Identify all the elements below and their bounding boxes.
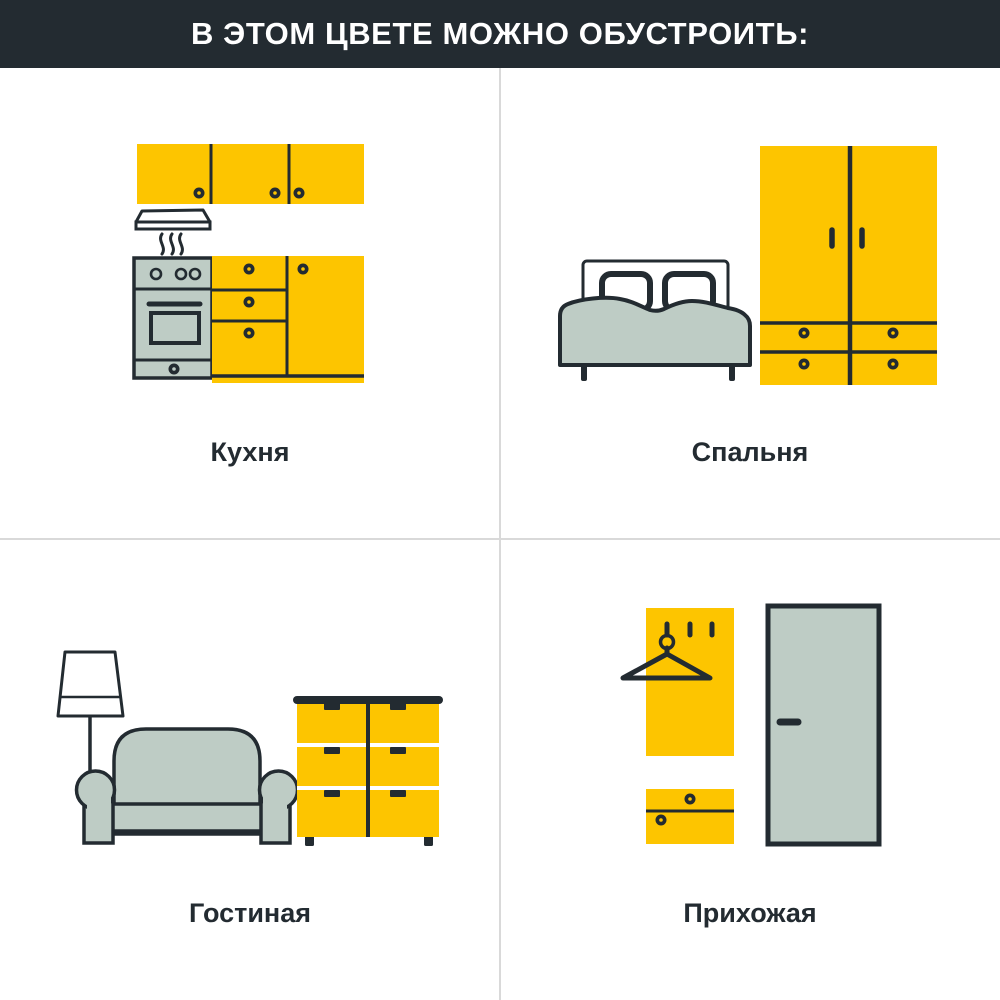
- drawer-knob-icon: [888, 359, 899, 370]
- drawer-knob-icon: [888, 328, 899, 339]
- room-label-hallway: Прихожая: [500, 897, 1000, 929]
- drawer-knob-icon: [244, 297, 255, 308]
- drawer-notch-handle-icon: [390, 790, 406, 797]
- room-label-kitchen: Кухня: [0, 436, 500, 468]
- dresser-top-icon: [293, 696, 443, 704]
- quadrant-kitchen: Кухня: [0, 68, 500, 539]
- sofa-arm-icon: [77, 771, 115, 843]
- chest-of-drawers-icon: [293, 696, 443, 846]
- quadrant-hallway: Прихожая: [500, 539, 1000, 1000]
- bed-leg-icon: [581, 365, 587, 381]
- drawer-knob-icon: [799, 328, 810, 339]
- header-bar: В ЭТОМ ЦВЕТЕ МОЖНО ОБУСТРОИТЬ:: [0, 0, 1000, 68]
- sofa-arm-icon: [260, 771, 298, 843]
- cabinet-knob-icon: [194, 188, 205, 199]
- cabinet-knob-icon: [270, 188, 281, 199]
- page-title: В ЭТОМ ЦВЕТЕ МОЖНО ОБУСТРОИТЬ:: [191, 16, 809, 52]
- sofa-icon: [77, 729, 298, 843]
- drawer-knob-icon: [169, 364, 180, 375]
- drawer-knob-icon: [685, 794, 696, 805]
- bed-leg-icon: [729, 365, 735, 381]
- stove-oven-icon: [134, 258, 212, 378]
- drawer-knob-icon: [656, 815, 667, 826]
- drawer-notch-handle-icon: [390, 747, 406, 754]
- coat-rack-panel-icon: [646, 608, 734, 756]
- drawer-notch-handle-icon: [390, 703, 406, 710]
- shoe-cabinet-icon: [646, 789, 734, 844]
- hallway-illustration: [500, 539, 1000, 1000]
- drawer-knob-icon: [244, 264, 255, 275]
- steam-icon: [161, 234, 183, 254]
- drawer-notch-handle-icon: [324, 703, 340, 710]
- wall-cabinets-icon: [137, 144, 364, 204]
- drawer-knob-icon: [799, 359, 810, 370]
- room-label-living-room: Гостиная: [0, 897, 500, 929]
- living-room-illustration: [0, 539, 500, 1000]
- quadrant-bedroom: Спальня: [500, 68, 1000, 539]
- base-cabinets-icon: [212, 256, 364, 383]
- wardrobe-icon: [760, 146, 937, 385]
- cabinet-knob-icon: [294, 188, 305, 199]
- range-hood-icon: [136, 210, 210, 229]
- double-bed-icon: [560, 261, 750, 381]
- drawer-knob-icon: [244, 328, 255, 339]
- drawer-knob-icon: [298, 264, 309, 275]
- infographic-poster: В ЭТОМ ЦВЕТЕ МОЖНО ОБУСТРОИТЬ:: [0, 0, 1000, 1000]
- kitchen-illustration: [0, 68, 500, 539]
- drawer-notch-handle-icon: [324, 790, 340, 797]
- quadrant-living-room: Гостиная: [0, 539, 500, 1000]
- bedroom-illustration: [500, 68, 1000, 539]
- drawer-notch-handle-icon: [324, 747, 340, 754]
- sofa-seat-icon: [100, 804, 274, 831]
- door-icon: [768, 606, 879, 844]
- room-label-bedroom: Спальня: [500, 436, 1000, 468]
